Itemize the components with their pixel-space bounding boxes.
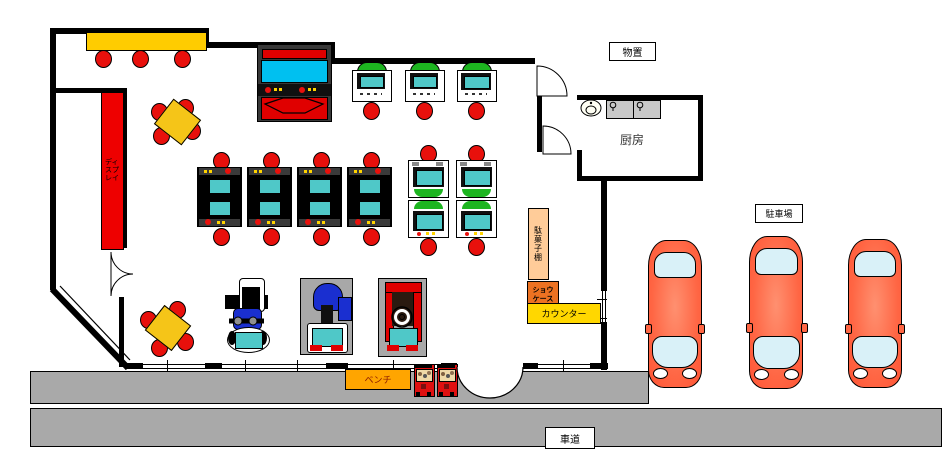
upright-cabinet-column[interactable] <box>408 145 447 255</box>
table-game-pair[interactable] <box>347 152 392 245</box>
table-screen <box>209 179 231 194</box>
control-strip <box>249 219 290 226</box>
upright-cabinet <box>408 160 449 198</box>
arcade-cabinet[interactable] <box>405 62 443 118</box>
side-mirror <box>801 323 808 333</box>
control-strip <box>199 219 240 226</box>
upright-cabinet <box>456 200 497 238</box>
table-game-pair[interactable] <box>197 152 242 245</box>
button <box>275 168 281 174</box>
button <box>279 88 282 91</box>
wall-bottom-seg <box>205 363 222 369</box>
leg <box>416 392 420 396</box>
sidewalk <box>30 371 649 404</box>
roadway <box>30 408 942 447</box>
button <box>259 170 262 173</box>
cabinet-tab <box>412 162 419 166</box>
table-game-unit <box>297 167 342 197</box>
wall-left-lower <box>119 295 124 367</box>
button <box>309 170 312 173</box>
stool[interactable] <box>263 228 280 246</box>
table-screen <box>309 179 331 194</box>
sink-basin <box>586 106 596 114</box>
upright-cabinet <box>456 160 497 198</box>
window-bottom <box>143 364 205 369</box>
foot-pad <box>387 345 399 351</box>
side-mirror <box>645 324 652 334</box>
button <box>355 219 361 225</box>
roadway-label[interactable]: 車道 <box>545 427 595 449</box>
capsule <box>423 374 427 378</box>
side-mirror <box>698 324 705 334</box>
leg <box>427 392 431 396</box>
button <box>432 232 435 235</box>
cabinet-marks <box>413 93 435 95</box>
wall-left <box>50 28 56 290</box>
control-strip <box>299 168 340 175</box>
button <box>322 221 325 224</box>
parked-car[interactable] <box>845 239 903 386</box>
wall-kitchen-right <box>698 95 703 181</box>
button <box>465 232 469 236</box>
button <box>255 219 261 225</box>
cabinet-green-base <box>462 201 491 209</box>
headlight <box>754 369 769 380</box>
window-tick <box>563 360 564 371</box>
roadway-label-text: 車道 <box>560 431 580 446</box>
button <box>474 232 477 235</box>
blue-rider-game[interactable] <box>300 278 353 355</box>
stool[interactable] <box>363 102 380 120</box>
cabinet-tab <box>460 162 467 166</box>
side-door-leaf[interactable] <box>111 274 133 296</box>
bar-stool[interactable] <box>132 50 149 68</box>
cabinet-marks <box>465 93 487 95</box>
wall-right-upper <box>601 181 607 291</box>
side-door-leaf[interactable] <box>111 252 133 274</box>
bench-label: ベンチ <box>364 373 391 386</box>
cabinet-marks <box>360 93 382 95</box>
control-strip <box>249 168 290 175</box>
table-screen <box>359 201 381 216</box>
stool[interactable] <box>468 238 485 256</box>
motorcycle-game[interactable] <box>225 278 270 352</box>
service-counter[interactable]: カウンター <box>527 303 601 324</box>
wall-right-lower <box>601 322 607 370</box>
button <box>265 87 271 93</box>
table-game-unit <box>247 197 292 227</box>
wall-bottom-seg <box>125 363 143 369</box>
button <box>317 221 320 224</box>
capsule-toy-machine[interactable] <box>414 364 435 397</box>
button <box>367 221 370 224</box>
window-bottom <box>222 364 326 369</box>
stool[interactable] <box>468 102 485 120</box>
side-mirror <box>845 324 852 334</box>
coin-slot <box>444 384 449 389</box>
table-game-pair[interactable] <box>297 152 342 245</box>
button <box>313 88 316 91</box>
headlight <box>853 368 868 379</box>
upright-cabinet-column[interactable] <box>456 145 495 255</box>
button <box>209 170 212 173</box>
coin-slot <box>421 384 426 389</box>
control-strip <box>299 219 340 226</box>
button <box>308 88 311 91</box>
control-strip <box>199 168 240 175</box>
snack-shelf-label: 駄菓子棚 <box>534 226 543 262</box>
button <box>305 219 311 225</box>
cabinet-green-base <box>462 189 491 197</box>
button <box>205 219 211 225</box>
table-game-pair[interactable] <box>247 152 292 245</box>
arcade-cabinet[interactable] <box>352 62 390 118</box>
cabinet-screen <box>413 76 437 88</box>
cockpit <box>392 292 413 326</box>
parked-car[interactable] <box>645 240 703 386</box>
table-game-unit <box>297 197 342 227</box>
bike-screen <box>235 332 263 349</box>
button <box>426 232 429 235</box>
button <box>480 232 483 235</box>
bar-stool[interactable] <box>174 50 191 68</box>
wall-kitchen-left <box>577 150 582 181</box>
bar-counter[interactable] <box>86 32 207 51</box>
kitchen-stove[interactable] <box>606 100 634 119</box>
rear-window <box>753 336 800 369</box>
foot-pad <box>331 345 343 351</box>
rear-window <box>652 336 698 368</box>
foot-pad <box>406 345 418 351</box>
upright-cabinet <box>408 200 449 238</box>
cabinet-screen <box>360 76 384 88</box>
storage-door[interactable] <box>537 66 567 96</box>
capsule <box>450 371 454 375</box>
table-game-unit <box>347 197 392 227</box>
cabinet-tab <box>484 162 491 166</box>
stool[interactable] <box>363 228 380 246</box>
table-screen <box>309 201 331 216</box>
capsule <box>441 372 445 376</box>
button <box>372 221 375 224</box>
button <box>375 168 381 174</box>
kitchen-door[interactable] <box>543 126 571 154</box>
button <box>274 88 277 91</box>
stool[interactable] <box>313 228 330 246</box>
side-door-gap <box>109 251 134 297</box>
wall-kitchen-bottom <box>577 176 703 181</box>
storage-room-label-text: 物置 <box>623 44 643 59</box>
side-unit <box>338 297 352 321</box>
parking-lot-label-text: 駐車場 <box>765 207 792 220</box>
button <box>417 232 421 236</box>
button <box>299 87 305 93</box>
table-game-unit <box>347 167 392 197</box>
capsule <box>446 374 450 378</box>
button <box>304 170 307 173</box>
machine-top-stripe <box>262 49 327 59</box>
button <box>217 221 220 224</box>
wall-bottom-seg <box>523 363 538 369</box>
machine-control-bar <box>258 84 331 96</box>
kitchen-sink <box>581 100 601 116</box>
stool[interactable] <box>420 238 437 256</box>
windshield <box>755 248 798 275</box>
button <box>354 170 357 173</box>
large-arcade-machine[interactable] <box>257 44 332 122</box>
floor-plan-canvas: 車道 ディスプレイ <box>0 0 948 459</box>
capsule <box>418 372 422 376</box>
display-shelf-label: ディスプレイ <box>105 159 120 183</box>
parking-lot-label[interactable]: 駐車場 <box>755 204 803 223</box>
table-screen <box>259 201 281 216</box>
kitchen-stove[interactable] <box>633 100 661 119</box>
window-tick <box>597 299 607 300</box>
wall-diagonal <box>52 289 128 368</box>
capsule-window <box>439 369 456 382</box>
storage-room-label[interactable]: 物置 <box>609 42 656 61</box>
button <box>222 221 225 224</box>
red-racing-game[interactable] <box>378 278 427 357</box>
headlight <box>682 368 697 379</box>
snack-shelf[interactable]: 駄菓子棚 <box>528 208 549 280</box>
foot-pad <box>310 345 322 351</box>
table-screen <box>259 179 281 194</box>
machine-top <box>415 365 432 368</box>
sink-faucet <box>590 102 592 104</box>
stool[interactable] <box>416 102 433 120</box>
kitchen-label: 厨房 <box>620 131 644 148</box>
cabinet-screen <box>464 170 491 186</box>
parked-car[interactable] <box>746 236 806 387</box>
table-screen <box>209 201 231 216</box>
machine-seat-area <box>261 97 328 120</box>
control-strip <box>349 168 390 175</box>
table-game-unit <box>247 167 292 197</box>
table-screen <box>359 179 381 194</box>
arcade-cabinet[interactable] <box>457 62 495 118</box>
wing-left <box>225 295 239 309</box>
windshield <box>854 251 896 277</box>
headlight <box>882 368 897 379</box>
machine-top <box>438 365 455 368</box>
leg <box>439 392 443 396</box>
capsule-window <box>416 369 433 382</box>
kitchen-label-text: 厨房 <box>620 133 644 147</box>
machine-screen <box>261 60 328 83</box>
window-tick <box>297 360 298 371</box>
cabinet-screen <box>464 214 491 230</box>
table-game-unit <box>197 197 242 227</box>
control-strip <box>349 219 390 226</box>
cabinet-green-base <box>414 201 443 209</box>
capsule-toy-machine[interactable] <box>437 364 458 397</box>
counter-label: カウンター <box>541 307 586 320</box>
cabinet-tab <box>436 162 443 166</box>
window-bottom <box>538 364 590 369</box>
button <box>204 170 207 173</box>
bar-stool[interactable] <box>95 50 112 68</box>
cabinet-screen <box>416 170 443 186</box>
stool[interactable] <box>213 228 230 246</box>
headlight <box>784 369 799 380</box>
display-shelf[interactable]: ディスプレイ <box>101 92 124 250</box>
rear-window <box>852 336 898 368</box>
button <box>267 221 270 224</box>
side-mirror <box>898 324 905 334</box>
window-tick <box>167 360 168 371</box>
button <box>272 221 275 224</box>
button <box>254 170 257 173</box>
table-game-unit <box>197 167 242 197</box>
cabinet-screen <box>416 214 443 230</box>
capsule <box>427 371 431 375</box>
headlight <box>653 368 668 379</box>
cabinet-green-base <box>414 189 443 197</box>
button <box>359 170 362 173</box>
leg <box>450 392 454 396</box>
windshield <box>654 252 696 278</box>
backrest-pad <box>242 287 260 309</box>
side-mirror <box>746 323 753 333</box>
button <box>325 168 331 174</box>
wall-storage-door-post <box>537 96 542 152</box>
window-tick <box>245 360 246 371</box>
cabinet-screen <box>464 76 490 89</box>
showcase-label-line1: ショウ <box>533 286 554 295</box>
button <box>225 168 231 174</box>
bench[interactable]: ベンチ <box>345 369 411 390</box>
